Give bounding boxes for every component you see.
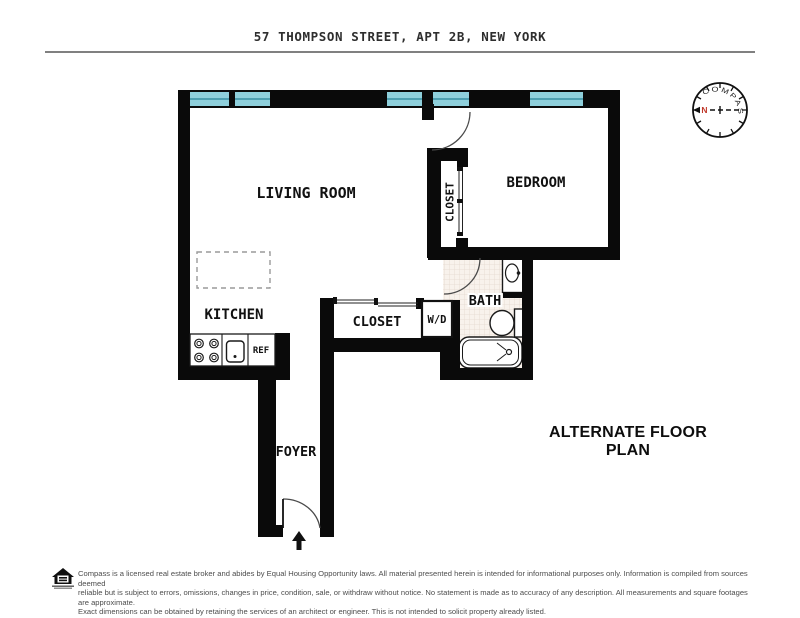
label-foyer: FOYER [276,444,318,460]
kitchen-counter: REF [190,334,275,366]
washer-dryer-box: W/D [422,301,452,337]
closet-door-lines [333,297,418,306]
label-bedroom-closet: CLOSET [444,182,457,222]
label-bath: BATH [469,293,502,309]
plan-variant-label: ALTERNATE FLOOR PLAN [536,424,720,460]
disclaimer-text: Compass is a licensed real estate broker… [78,569,758,617]
compass: COMPASS N [0,0,747,137]
label-living-room: LIVING ROOM [256,184,355,202]
label-washer-dryer: W/D [428,314,447,326]
label-fridge: REF [253,346,269,356]
entry-door-arc [283,499,320,528]
bathroom-sink-icon [503,258,524,293]
kitchen-sink-icon [227,341,245,362]
door-hinge-block [422,104,434,120]
disclaimer-line: Compass is a licensed real estate broker… [78,569,748,588]
toilet-icon [490,309,526,337]
bedroom-door-arc [432,112,470,150]
equal-housing-logo-icon [52,568,74,590]
label-bedroom: BEDROOM [506,175,565,191]
label-kitchen: KITCHEN [204,307,263,323]
bathtub-icon [459,337,522,368]
bedroom-closet-door-lines [457,167,463,236]
disclaimer-line: reliable but is subject to errors, omiss… [78,588,748,607]
floor-plan-drawing: REF W/D LIV [0,0,800,618]
entry-arrow-icon [292,531,306,550]
label-hall-closet: CLOSET [353,314,402,330]
disclaimer-line: Exact dimensions can be obtained by reta… [78,607,546,616]
kitchen-island-outline [197,252,270,288]
floor-plan-page: 57 THOMPSON STREET, APT 2B, NEW YORK [0,0,800,618]
compass-north-label: N [701,105,707,115]
